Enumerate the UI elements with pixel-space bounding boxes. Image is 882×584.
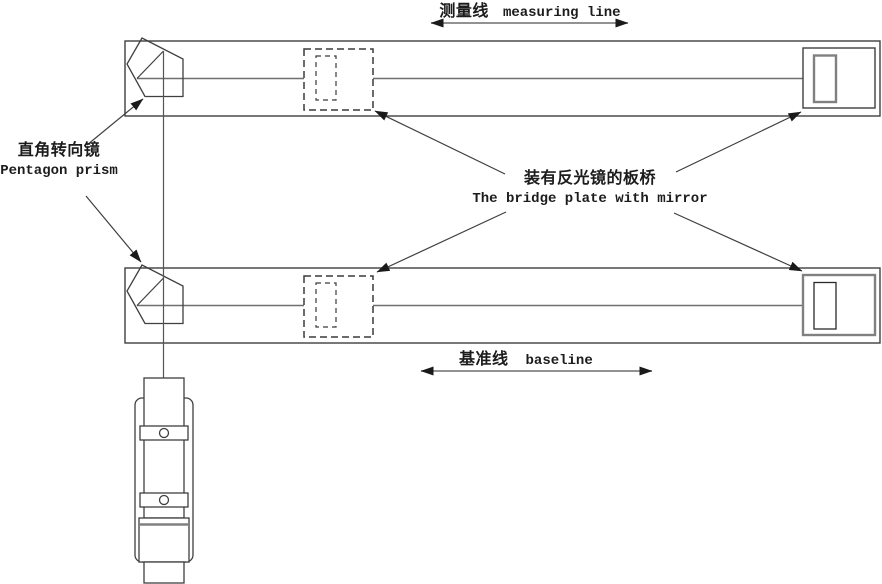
reflector-target-bottom	[803, 275, 875, 335]
instrument-foot	[144, 562, 184, 583]
label-bridge-plate-en: The bridge plate with mirror	[472, 192, 707, 207]
leader-bridge-top-right	[676, 112, 801, 172]
label-pentagon-prism-en: Pentagon prism	[0, 164, 118, 179]
leader-pentagon-bottom	[86, 196, 141, 262]
instrument-base	[139, 518, 189, 562]
label-pentagon-prism: 直角转向镜 Pentagon prism	[0, 141, 118, 179]
diagram-canvas: 测量线 measuring line 直角转向镜 Pentagon prism …	[0, 0, 882, 584]
bridge-measurement-diagram	[0, 0, 882, 584]
leader-bridge-top-left	[375, 111, 505, 174]
label-pentagon-prism-zh: 直角转向镜	[18, 141, 101, 159]
label-baseline-en: baseline	[526, 354, 593, 369]
instrument-band-lower	[140, 493, 188, 507]
mirror-bridge-box-bottom	[304, 276, 373, 337]
beam-top	[125, 38, 880, 116]
leader-pentagon-top	[87, 99, 143, 145]
label-baseline-zh: 基准线	[459, 350, 509, 368]
label-measuring-line-zh: 测量线	[439, 2, 489, 20]
pentagon-prism-top	[127, 38, 183, 97]
label-bridge-plate-zh: 装有反光镜的板桥	[524, 169, 656, 187]
beam-bottom	[125, 265, 880, 343]
reflector-target-top	[803, 48, 875, 108]
leader-bridge-bottom-right	[674, 213, 802, 271]
instrument-band-upper	[140, 426, 188, 440]
pentagon-prism-bottom	[127, 265, 183, 324]
mirror-bridge-box-top	[304, 49, 373, 110]
label-measuring-line: 测量线 measuring line	[429, 2, 631, 21]
label-measuring-line-en: measuring line	[503, 6, 621, 21]
survey-instrument	[135, 378, 193, 583]
leader-bridge-bottom-left	[377, 212, 506, 272]
label-bridge-plate: 装有反光镜的板桥 The bridge plate with mirror	[455, 169, 725, 207]
label-baseline: 基准线 baseline	[459, 350, 593, 369]
